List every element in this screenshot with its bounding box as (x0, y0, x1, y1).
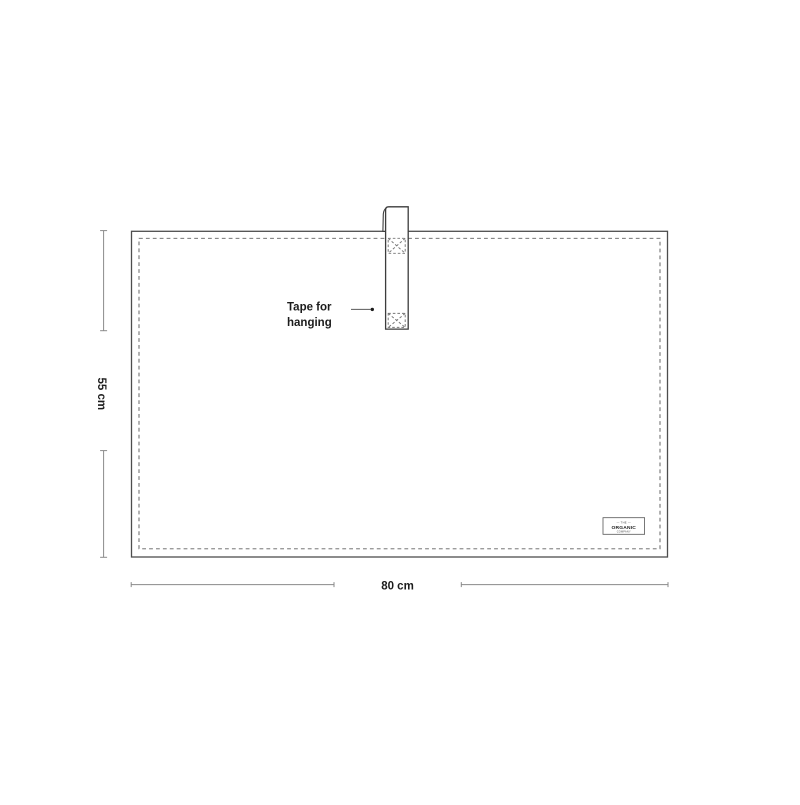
svg-text:hanging: hanging (287, 317, 332, 329)
svg-text:80 cm: 80 cm (381, 580, 414, 592)
svg-text:55 cm: 55 cm (95, 377, 107, 410)
svg-text:Tape for: Tape for (287, 302, 332, 314)
svg-text:— THE —: — THE — (617, 520, 631, 524)
svg-text:COMPANY: COMPANY (617, 531, 631, 534)
